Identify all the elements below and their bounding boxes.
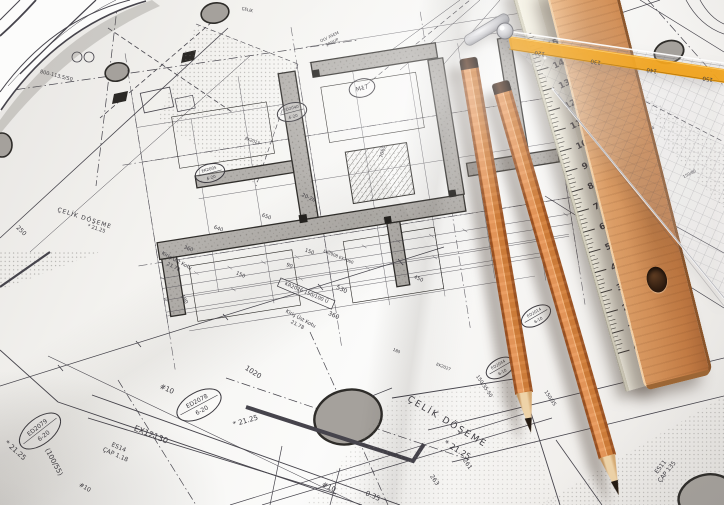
pencil-1-graphite-tip xyxy=(523,417,535,433)
pencil-2-graphite-tip xyxy=(610,480,624,497)
architectural-blueprint-photo: ED20796-20ED20786-20M17ED20146-10ED20406… xyxy=(0,0,724,505)
set-square: 120130140150 xyxy=(0,0,724,505)
